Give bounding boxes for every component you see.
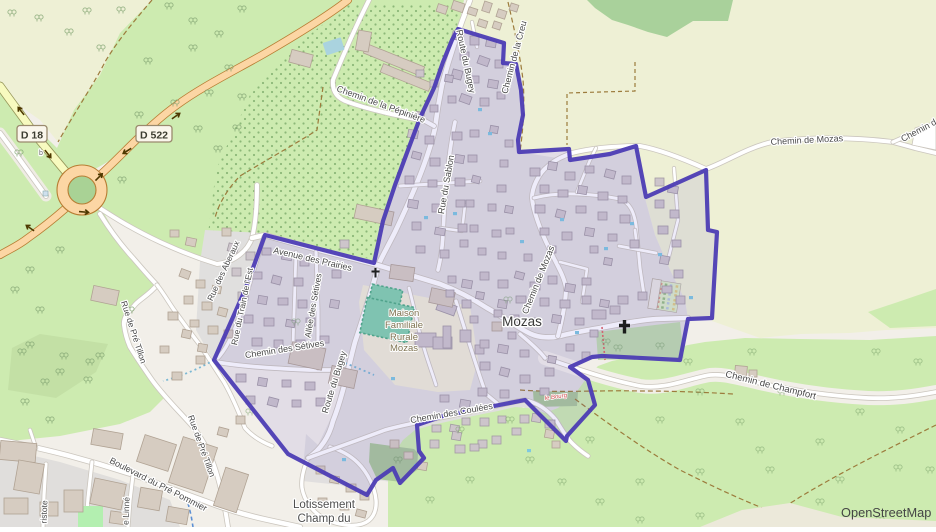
svg-text:Mozas: Mozas: [502, 314, 542, 329]
svg-text:D 522: D 522: [140, 130, 168, 142]
svg-text:Rurale: Rurale: [390, 332, 418, 343]
svg-text:ristote: ristote: [39, 500, 50, 524]
svg-text:Familiale: Familiale: [385, 320, 423, 331]
svg-text:Mozas: Mozas: [390, 343, 418, 354]
svg-text:Maison: Maison: [389, 308, 420, 319]
svg-text:Champ du: Champ du: [297, 513, 350, 525]
svg-text:OpenStreetMap: OpenStreetMap: [841, 505, 931, 520]
svg-text:D 18: D 18: [21, 130, 43, 142]
svg-text:b: b: [39, 150, 43, 157]
svg-text:e Linné: e Linné: [121, 497, 132, 525]
svg-text:Lotissement: Lotissement: [293, 499, 356, 511]
